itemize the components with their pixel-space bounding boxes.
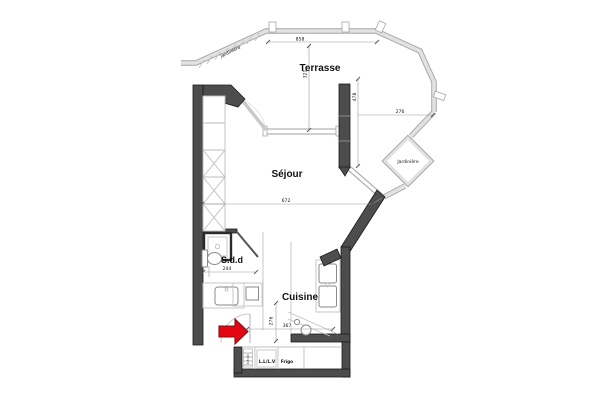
entry-bottom-wall bbox=[234, 369, 350, 377]
kitchen-bottom-wall bbox=[291, 334, 350, 342]
dim-bay-height: 478 bbox=[352, 93, 358, 102]
cuisine-label: Cuisine bbox=[282, 292, 319, 303]
dim-sdd-width: 244 bbox=[223, 266, 232, 272]
hob-burner bbox=[301, 325, 311, 335]
kitchen-right-wall bbox=[341, 247, 350, 342]
sdd-fixtures bbox=[202, 232, 263, 330]
dim-entry-depth: 276 bbox=[269, 317, 275, 326]
dim-terrace-right: 276 bbox=[396, 109, 405, 115]
terrace-door-leaf bbox=[242, 100, 266, 130]
terrace-post bbox=[269, 22, 276, 32]
diagonal-wall bbox=[341, 190, 385, 253]
dim-kitchen-width: 367 bbox=[283, 323, 292, 329]
entrance-arrow-icon bbox=[219, 319, 248, 344]
bay-windows bbox=[242, 84, 382, 197]
kitchen-duct bbox=[320, 249, 341, 266]
washbasin bbox=[215, 287, 238, 305]
sink-drainer bbox=[319, 264, 337, 283]
entry-left-wall bbox=[234, 347, 242, 373]
jardiniere-side-label: Jardinière bbox=[396, 158, 419, 165]
hob-burner bbox=[294, 319, 299, 324]
washer-label: L.L/L.V bbox=[259, 359, 276, 365]
toilet-tank bbox=[202, 250, 208, 267]
kitchen-fixtures bbox=[288, 242, 341, 336]
terrace-post bbox=[375, 21, 386, 33]
floor-plan-drawing: 858 321 478 276 672 244 276 367 Terrasse… bbox=[0, 0, 600, 400]
kitchen-sink bbox=[319, 286, 337, 307]
window-pier bbox=[339, 84, 350, 176]
floor-plan-canvas: 858 321 478 276 672 244 276 367 Terrasse… bbox=[0, 0, 600, 400]
dim-sejour-width: 672 bbox=[282, 198, 291, 204]
toilet bbox=[208, 253, 222, 265]
wardrobe bbox=[203, 96, 225, 231]
dim-terrace-width: 858 bbox=[296, 37, 305, 43]
utility-strip-label: t.e.d.t bbox=[246, 353, 250, 363]
sejour-label: Séjour bbox=[271, 169, 302, 180]
sdd-label: S.d.d bbox=[221, 255, 243, 265]
terrace-post bbox=[342, 22, 349, 32]
fridge-label: Frigo bbox=[281, 359, 293, 365]
terrace-label: Terrasse bbox=[300, 63, 341, 74]
left-wall bbox=[193, 85, 203, 345]
sdd-door-leaf bbox=[237, 232, 258, 257]
